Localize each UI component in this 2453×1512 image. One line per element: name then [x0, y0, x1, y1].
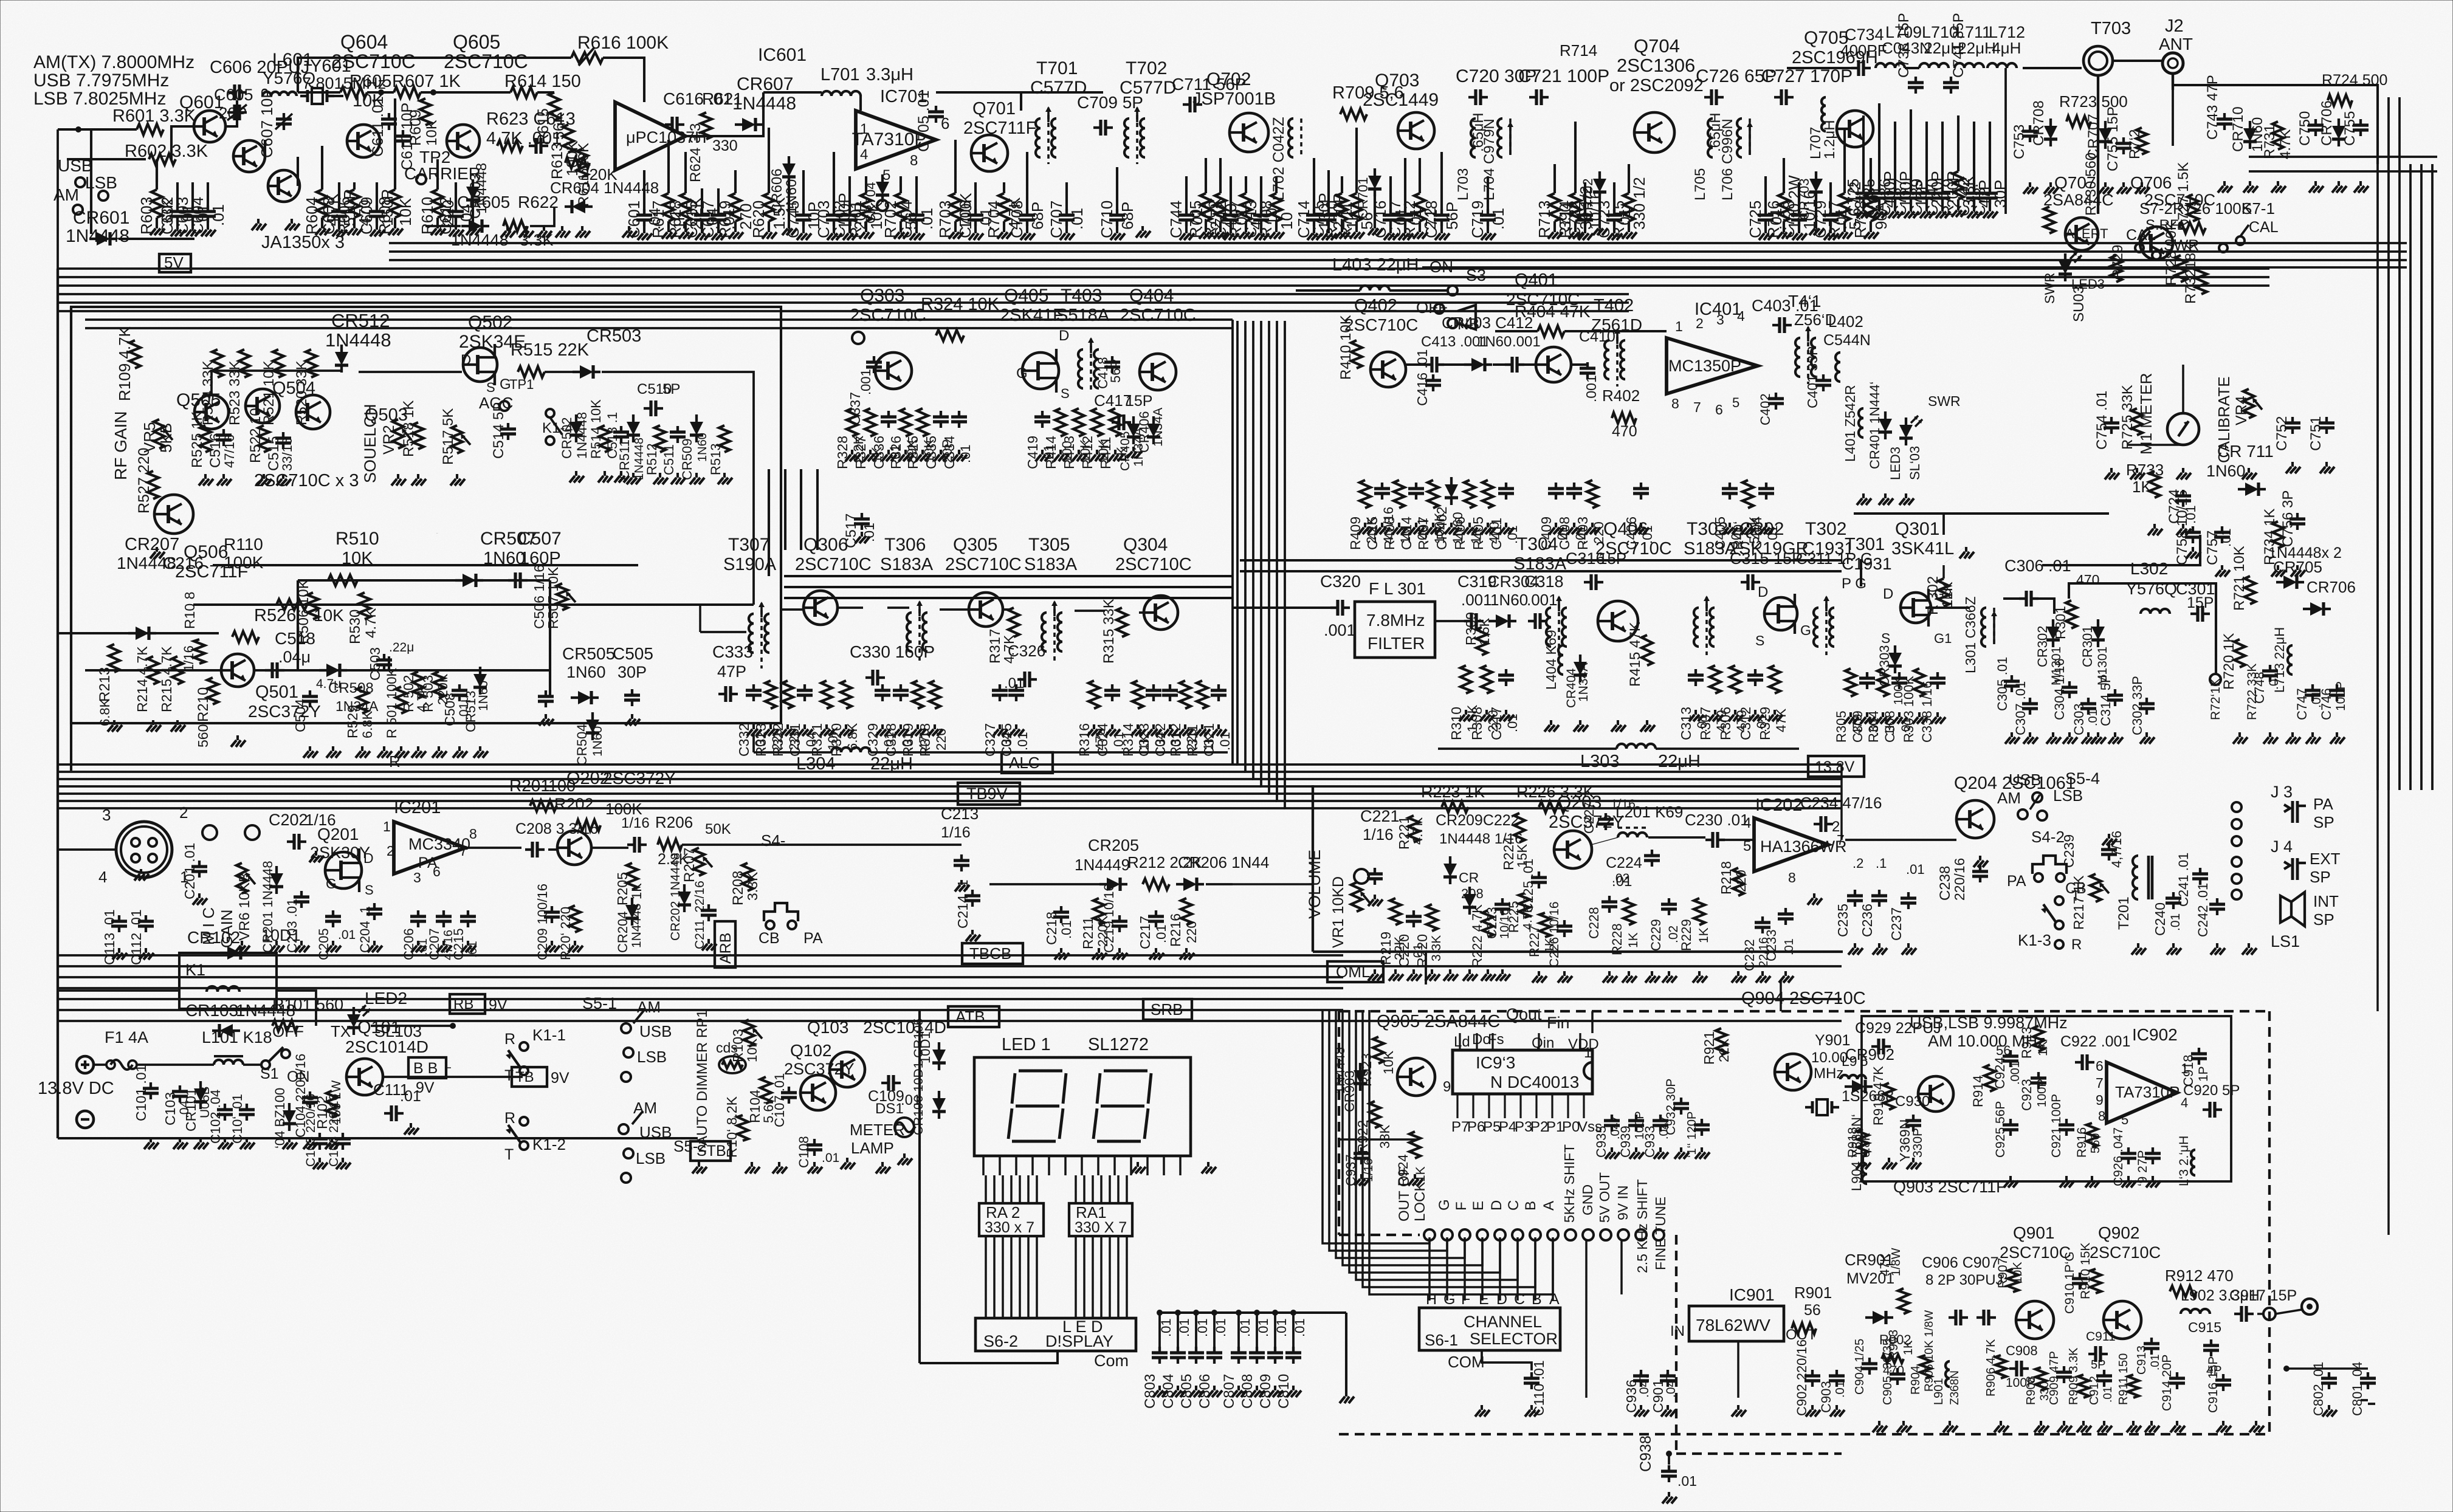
svg-text:P0: P0	[1562, 1119, 1580, 1135]
svg-text:1N60: 1N60	[476, 681, 490, 711]
svg-text:Q401: Q401	[1515, 270, 1558, 290]
svg-text:15P: 15P	[1126, 393, 1152, 410]
svg-text:3.3K: 3.3K	[745, 871, 760, 901]
svg-text:IC902: IC902	[2132, 1025, 2178, 1044]
svg-text:C318: C318	[1524, 572, 1564, 591]
svg-text:Q506: Q506	[436, 533, 438, 534]
svg-text:SOUELCH: SOUELCH	[361, 404, 379, 483]
svg-text:1N4448: 1N4448	[630, 903, 644, 948]
svg-text:TB9V: TB9V	[966, 785, 1008, 803]
svg-text:.001: .001	[1461, 591, 1492, 609]
svg-text:R10 8: R10 8	[182, 592, 198, 629]
svg-text:C216: C216	[163, 554, 204, 572]
svg-text:L401 Z542R: L401 Z542R	[1842, 385, 1858, 462]
svg-text:R722 33K: R722 33K	[2245, 664, 2259, 720]
svg-text:K1-2: K1-2	[532, 1135, 566, 1153]
svg-text:CR604 1N4448: CR604 1N4448	[550, 179, 659, 197]
svg-text:2SA844C: 2SA844C	[2043, 191, 2114, 209]
svg-text:20P: 20P	[219, 104, 247, 122]
svg-text:1N4449: 1N4449	[1075, 856, 1130, 874]
svg-text:P G: P G	[1842, 576, 1866, 592]
svg-text:.01: .01	[822, 1151, 839, 1165]
svg-text:C922 .001: C922 .001	[2060, 1033, 2130, 1050]
svg-text:R906 4.7K: R906 4.7K	[1984, 1339, 1998, 1397]
svg-text:C226 10/16: C226 10/16	[1547, 901, 1561, 967]
svg-text:3.3μH: 3.3μH	[866, 65, 913, 84]
svg-text:R101 560: R101 560	[272, 995, 343, 1014]
svg-text:C802 .01: C802 .01	[2311, 1362, 2326, 1416]
svg-text:CR207: CR207	[125, 535, 179, 554]
svg-text:2SC710C: 2SC710C	[1120, 306, 1196, 325]
svg-text:1K: 1K	[1697, 927, 1711, 943]
svg-text:C333: C333	[712, 642, 753, 661]
svg-text:F: F	[1453, 1201, 1470, 1211]
svg-text:R911 150: R911 150	[2117, 1353, 2130, 1405]
svg-text:12K: 12K	[1939, 582, 1956, 608]
svg-text:9V: 9V	[489, 997, 507, 1014]
svg-text:6: 6	[2096, 1058, 2104, 1074]
svg-text:E: E	[1470, 1201, 1487, 1211]
svg-text:4.7K: 4.7K	[2277, 129, 2294, 159]
svg-text:A: A	[1549, 1291, 1560, 1308]
svg-text:C215: C215	[451, 928, 466, 960]
svg-text:10K: 10K	[2011, 1262, 2025, 1283]
svg-text:C240: C240	[2152, 902, 2168, 936]
svg-text:L303: L303	[1580, 752, 1620, 771]
svg-text:4: 4	[860, 146, 868, 163]
svg-text:R109 4.7K: R109 4.7K	[115, 326, 134, 401]
svg-text:3: 3	[413, 870, 421, 885]
svg-text:R614 150: R614 150	[504, 72, 581, 91]
svg-text:Q303: Q303	[860, 286, 904, 306]
svg-text:S3: S3	[1466, 266, 1486, 284]
svg-text:10K: 10K	[396, 198, 415, 226]
svg-text:470: 470	[1612, 423, 1637, 440]
svg-text:G: G	[326, 876, 337, 892]
svg-text:5: 5	[1732, 395, 1739, 410]
svg-text:S: S	[1061, 386, 1070, 401]
svg-text:5P: 5P	[662, 381, 680, 397]
svg-text:C105 220/16: C105 220/16	[304, 1094, 318, 1167]
svg-text:TP1: TP1	[509, 377, 534, 392]
svg-text:C302 33P: C302 33P	[2130, 676, 2145, 735]
svg-text:.04μ: .04μ	[278, 648, 311, 666]
svg-text:C738 15P: C738 15P	[1896, 13, 1912, 78]
svg-text:PA: PA	[2313, 795, 2333, 813]
svg-text:.01: .01	[1154, 924, 1169, 943]
svg-text:.1: .1	[1876, 856, 1887, 871]
svg-text:S: S	[486, 380, 495, 395]
svg-text:1.2μH: 1.2μH	[1822, 120, 1838, 159]
svg-text:CR402: CR402	[1434, 506, 1450, 550]
svg-text:D: D	[461, 352, 471, 368]
svg-text:R908: R908	[2025, 1376, 2038, 1405]
svg-text:Q201: Q201	[317, 825, 359, 844]
svg-text:4: 4	[98, 868, 107, 886]
svg-text:30P: 30P	[618, 663, 647, 681]
svg-text:R110: R110	[224, 535, 263, 554]
svg-text:IN: IN	[1670, 1323, 1685, 1339]
svg-text:S4-: S4-	[761, 831, 785, 850]
svg-text:.01: .01	[1612, 873, 1632, 890]
svg-text:CR511: CR511	[617, 439, 632, 480]
svg-text:Q404: Q404	[1129, 286, 1174, 306]
svg-text:R211: R211	[1080, 917, 1096, 949]
svg-text:CR509: CR509	[679, 439, 695, 480]
svg-text:IC202: IC202	[1755, 796, 1802, 815]
svg-text:5KHz SHIFT: 5KHz SHIFT	[1561, 1144, 1577, 1223]
svg-text:C708: C708	[1008, 201, 1026, 238]
svg-text:C728: C728	[1780, 201, 1798, 238]
svg-text:F L 301: F L 301	[1369, 579, 1426, 598]
svg-text:C753: C753	[2011, 125, 2028, 159]
svg-text:CR703: CR703	[1797, 179, 1812, 220]
svg-text:2SC710C: 2SC710C	[444, 50, 528, 72]
svg-text:C754 .01: C754 .01	[2094, 391, 2110, 450]
svg-text:1P: 1P	[2197, 1066, 2210, 1082]
svg-text:L706 C996N: L706 C996N	[1719, 119, 1736, 201]
svg-text:G1: G1	[1934, 631, 1952, 646]
svg-text:L601: L601	[272, 50, 313, 70]
svg-text:2SC1449: 2SC1449	[1363, 90, 1439, 110]
svg-text:C108: C108	[796, 1136, 811, 1168]
svg-text:R704: R704	[985, 201, 1003, 238]
svg-text:SP: SP	[2310, 868, 2331, 886]
svg-text:9: 9	[1443, 1079, 1451, 1095]
svg-text:J 4: J 4	[2271, 837, 2293, 856]
svg-text:2.5 KHz SHIFT: 2.5 KHz SHIFT	[1634, 1179, 1650, 1273]
svg-text:C110 .01: C110 .01	[1531, 1360, 1547, 1416]
svg-text:C609: C609	[357, 197, 376, 235]
svg-text:220: 220	[1733, 870, 1749, 892]
svg-text:C704: C704	[897, 201, 915, 238]
svg-text:Q102: Q102	[790, 1041, 832, 1060]
svg-text:SL1272: SL1272	[1088, 1035, 1149, 1054]
svg-text:100K: 100K	[224, 553, 264, 572]
svg-text:2: 2	[179, 803, 188, 822]
svg-text:C404: C404	[1749, 517, 1764, 550]
svg-text:R603: R603	[137, 197, 156, 235]
svg-text:EXT: EXT	[2310, 850, 2341, 868]
svg-text:COM: COM	[1448, 1353, 1485, 1371]
svg-text:S183A: S183A	[1024, 555, 1078, 574]
svg-text:1: 1	[1675, 318, 1683, 334]
svg-text:R703: R703	[936, 201, 954, 238]
svg-text:R326: R326	[888, 436, 904, 469]
svg-text:C706: C706	[956, 201, 974, 238]
svg-text:C317: C317	[1488, 707, 1504, 740]
svg-text:R103: R103	[730, 1029, 746, 1062]
svg-text:13.8V: 13.8V	[1815, 758, 1855, 775]
svg-text:VDD: VDD	[1568, 1036, 1599, 1053]
svg-text:Qout: Qout	[1506, 1005, 1542, 1023]
svg-text:Q502: Q502	[468, 312, 512, 332]
svg-text:CR504: CR504	[574, 724, 590, 766]
svg-text:8: 8	[1788, 870, 1796, 885]
svg-text:22K: 22K	[1716, 1039, 1732, 1062]
svg-text:R327: R327	[853, 436, 869, 469]
svg-text:R215 4.7K: R215 4.7K	[159, 646, 174, 712]
svg-text:GND: GND	[1580, 1184, 1595, 1215]
svg-text:C220: C220	[1396, 934, 1412, 967]
svg-text:9V: 9V	[551, 1070, 569, 1087]
svg-text:10K: 10K	[424, 120, 440, 146]
svg-text:.001: .001	[1512, 334, 1541, 350]
svg-text:C917 15P: C917 15P	[2229, 1287, 2297, 1304]
svg-text:C242 .01: C242 .01	[2195, 883, 2210, 937]
svg-text:OFF: OFF	[272, 1022, 304, 1040]
svg-text:.4μH: .4μH	[1987, 39, 2021, 57]
svg-text:CR707: CR707	[2085, 114, 2102, 159]
svg-text:T402: T402	[1594, 296, 1634, 315]
svg-text:.01: .01	[1677, 1473, 1697, 1489]
svg-text:R213: R213	[97, 667, 113, 702]
svg-text:CR302: CR302	[2035, 626, 2050, 667]
svg-text:T305: T305	[1028, 535, 1070, 555]
svg-text:L702 C042Z: L702 C042Z	[1270, 117, 1287, 201]
svg-text:C205: C205	[316, 928, 331, 960]
svg-text:R329: R329	[1757, 707, 1773, 740]
svg-text:R912 470: R912 470	[2165, 1266, 2234, 1285]
svg-text:R207: R207	[681, 848, 698, 882]
svg-text:CR106 10D1 CR105: CR106 10D1 CR105	[912, 1018, 926, 1135]
svg-text:USB: USB	[2009, 771, 2041, 789]
svg-text:C807: C807	[1221, 1374, 1237, 1409]
svg-text:C334: C334	[941, 436, 957, 469]
svg-text:2SC372Y: 2SC372Y	[784, 1060, 855, 1078]
svg-text:K1-3: K1-3	[2018, 931, 2051, 949]
svg-text:.01: .01	[1068, 208, 1086, 230]
svg-text:C229: C229	[1648, 919, 1663, 951]
svg-text:R512: R512	[644, 443, 659, 475]
svg-text:Q604: Q604	[340, 31, 388, 53]
svg-text:1/16: 1/16	[1363, 825, 1394, 844]
svg-text:1/16: 1/16	[181, 645, 196, 672]
svg-text:C202: C202	[269, 811, 308, 829]
svg-text:C751: C751	[2308, 416, 2324, 451]
svg-text:C338 1/16: C338 1/16	[1919, 681, 1935, 743]
svg-text:.001: .001	[1324, 621, 1356, 639]
svg-text:2SK41F: 2SK41F	[1000, 306, 1064, 325]
svg-text:56P: 56P	[1108, 359, 1123, 383]
svg-text:C102 .04: C102 .04	[208, 1090, 223, 1144]
svg-text:IC201: IC201	[394, 798, 441, 817]
svg-text:CR702: CR702	[1580, 179, 1595, 220]
svg-text:22μH: 22μH	[1658, 752, 1701, 771]
svg-text:‘04 BZ100: ‘04 BZ100	[272, 1088, 287, 1149]
svg-text:RF GAIN: RF GAIN	[111, 411, 130, 480]
svg-text:C232: C232	[1742, 939, 1757, 971]
svg-text:C705 .01: C705 .01	[915, 91, 932, 152]
svg-text:R410 10K: R410 10K	[1338, 315, 1354, 380]
svg-text:R304: R304	[1866, 710, 1881, 743]
svg-text:R618: R618	[666, 201, 684, 238]
svg-text:C320: C320	[1320, 572, 1361, 591]
svg-text:R210: R210	[195, 687, 212, 722]
svg-text:S6-2: S6-2	[983, 1332, 1018, 1350]
svg-text:C906 C907: C906 C907	[1922, 1254, 1998, 1271]
svg-text:B B: B B	[413, 1060, 438, 1077]
svg-text:R530: R530	[347, 610, 363, 644]
svg-text:R408: R408	[1381, 517, 1397, 550]
svg-text:LSB: LSB	[2053, 786, 2083, 805]
svg-text:1/16: 1/16	[941, 824, 971, 841]
svg-text:L201 K69: L201 K69	[1615, 803, 1683, 821]
svg-text:4.7K: 4.7K	[363, 608, 379, 638]
svg-text:C604: C604	[188, 197, 207, 235]
svg-text:INT: INT	[2313, 892, 2339, 910]
svg-text:METER: METER	[850, 1121, 905, 1139]
svg-text:1N60: 1N60	[591, 726, 605, 757]
svg-text:CB: CB	[759, 930, 780, 947]
svg-text:2SC710C: 2SC710C	[795, 555, 872, 574]
svg-text:10: 10	[1278, 212, 1296, 230]
svg-text:1.5K: 1.5K	[1477, 617, 1492, 645]
svg-text:C902 220/16: C902 220/16	[1794, 1339, 1809, 1416]
svg-text:‘1‘‘ 120P: ‘1‘‘ 120P	[1685, 1112, 1699, 1158]
svg-text:1N34A: 1N34A	[1151, 408, 1165, 447]
svg-text:C808: C808	[1239, 1374, 1256, 1409]
svg-text:C544N: C544N	[1823, 332, 1871, 349]
svg-text:C908: C908	[2006, 1343, 2038, 1358]
svg-text:R201: R201	[509, 776, 550, 795]
svg-text:Z368N: Z368N	[1949, 1370, 1961, 1405]
svg-text:C932 30P: C932 30P	[1664, 1079, 1678, 1135]
svg-text:.01: .01	[2102, 1387, 2114, 1403]
svg-text:C707: C707	[1047, 201, 1065, 238]
svg-text:R218: R218	[1718, 861, 1734, 895]
svg-text:560: 560	[2089, 1133, 2102, 1153]
svg-text:C230 .01: C230 .01	[1685, 811, 1749, 829]
svg-text:R608: R608	[376, 197, 394, 235]
svg-text:Q306: Q306	[803, 535, 848, 555]
svg-text:C304 1/16: C304 1/16	[2052, 658, 2067, 720]
svg-text:.04: .04	[645, 208, 664, 230]
svg-text:C237: C237	[1888, 907, 1904, 941]
svg-text:.001: .001	[1583, 375, 1599, 402]
svg-text:L402: L402	[1828, 312, 1863, 331]
svg-text:.01: .01	[1489, 208, 1507, 230]
svg-text:Q402: Q402	[1354, 296, 1397, 315]
svg-text:PA: PA	[803, 930, 823, 947]
svg-text:K1: K1	[185, 961, 205, 979]
svg-text:SELECTOR: SELECTOR	[1470, 1330, 1558, 1348]
svg-text:C308: C308	[1882, 710, 1897, 743]
svg-text:L901: L901	[1932, 1378, 1946, 1406]
svg-text:33K: 33K	[1377, 1125, 1392, 1149]
svg-text:G: G	[1436, 1199, 1453, 1211]
svg-text:R40‘: R40‘	[1730, 521, 1746, 550]
svg-text:2SC710C: 2SC710C	[1115, 555, 1192, 574]
svg-text:L403 22μH: L403 22μH	[1332, 255, 1419, 275]
svg-text:78L62WV: 78L62WV	[1696, 1316, 1770, 1335]
svg-text:R620: R620	[749, 201, 768, 238]
svg-text:C236: C236	[1859, 904, 1875, 937]
svg-text:OML: OML	[1336, 963, 1370, 981]
svg-text:R904: R904	[1909, 1366, 1922, 1395]
svg-text:8: 8	[2098, 1108, 2105, 1124]
svg-text:R407: R407	[1416, 517, 1431, 550]
svg-text:CR103: CR103	[185, 1001, 238, 1020]
svg-text:C312: C312	[1738, 707, 1753, 740]
svg-text:1N4448x 2: 1N4448x 2	[2268, 545, 2342, 562]
svg-text:5P: 5P	[2091, 1358, 2105, 1372]
svg-text:C905 .33/35: C905 .33/35	[1881, 1339, 1894, 1405]
svg-text:330: 330	[712, 137, 738, 154]
svg-text:R414: R414	[1043, 436, 1059, 469]
svg-text:C221: C221	[1360, 807, 1400, 825]
svg-text:1N60: 1N60	[566, 663, 606, 681]
svg-text:2SC710C: 2SC710C	[850, 306, 926, 325]
svg-text:P6: P6	[1467, 1119, 1485, 1135]
svg-text:R220: R220	[1414, 934, 1430, 967]
svg-text:C516: C516	[207, 433, 224, 468]
svg-text:Y369N: Y369N	[1897, 1119, 1913, 1162]
svg-text:68P: 68P	[1118, 202, 1137, 230]
svg-text:1K: 1K	[2036, 1040, 2050, 1056]
svg-text:1N4448: 1N4448	[574, 412, 590, 459]
svg-text:VR1 10KD: VR1 10KD	[1330, 876, 1347, 948]
svg-text:CR704: CR704	[863, 182, 878, 224]
svg-text:R604: R604	[303, 197, 321, 235]
svg-text:C73‘: C73‘	[1970, 184, 1989, 216]
svg-text:R606: R606	[335, 197, 353, 235]
svg-text:50K: 50K	[705, 821, 731, 837]
svg-text:.001: .001	[858, 369, 873, 395]
svg-text:Q703: Q703	[1375, 70, 1419, 91]
svg-text:5: 5	[2121, 1112, 2128, 1127]
svg-text:13.8V DC: 13.8V DC	[38, 1079, 114, 1098]
svg-text:G: G	[1443, 1291, 1455, 1308]
svg-text:Q305: Q305	[953, 535, 997, 555]
svg-text:220: 220	[1184, 921, 1199, 943]
svg-text:R715: R715	[1609, 201, 1628, 238]
svg-text:R515 22K: R515 22K	[511, 340, 590, 360]
svg-text:2SC710C: 2SC710C	[2090, 1243, 2161, 1262]
svg-text:R730 560: R730 560	[2083, 153, 2099, 216]
svg-text:L9‘5: L9‘5	[1842, 1053, 1868, 1069]
svg-text:.01: .01	[1783, 938, 1796, 955]
svg-text:R205: R205	[614, 872, 630, 905]
svg-text:C508: C508	[442, 693, 458, 726]
svg-text:SP: SP	[2313, 910, 2334, 929]
svg-text:R: R	[2071, 936, 2082, 953]
svg-text:B: B	[1522, 1201, 1539, 1211]
svg-text:R405: R405	[1470, 517, 1486, 550]
svg-text:9V IN: 9V IN	[1615, 1185, 1631, 1220]
svg-text:C223: C223	[1484, 907, 1499, 939]
svg-text:SP: SP	[2313, 813, 2334, 831]
svg-text:T306: T306	[884, 535, 926, 555]
svg-text:C741 35P: C741 35P	[1950, 13, 1967, 78]
svg-text:C411: C411	[1488, 518, 1504, 550]
svg-text:1N4448: 1N4448	[325, 329, 391, 351]
svg-text:FINE TUNE: FINE TUNE	[1653, 1197, 1668, 1270]
svg-text:.01: .01	[1059, 920, 1074, 939]
svg-text:T302: T302	[1805, 519, 1846, 539]
svg-text:SWR: SWR	[1928, 393, 1961, 409]
svg-text:1/16: 1/16	[621, 815, 650, 831]
svg-text:R402: R402	[1602, 387, 1640, 405]
svg-text:LOCK: LOCK	[1412, 1182, 1428, 1222]
svg-text:R907: R907	[1996, 1258, 2010, 1288]
svg-text:9: 9	[2096, 1092, 2104, 1108]
svg-text:T403: T403	[1061, 286, 1102, 306]
svg-text:C744: C744	[1167, 201, 1185, 238]
svg-text:6: 6	[1715, 402, 1723, 418]
svg-text:C605: C605	[214, 86, 253, 104]
svg-text:HA1366WR: HA1366WR	[1760, 837, 1847, 856]
